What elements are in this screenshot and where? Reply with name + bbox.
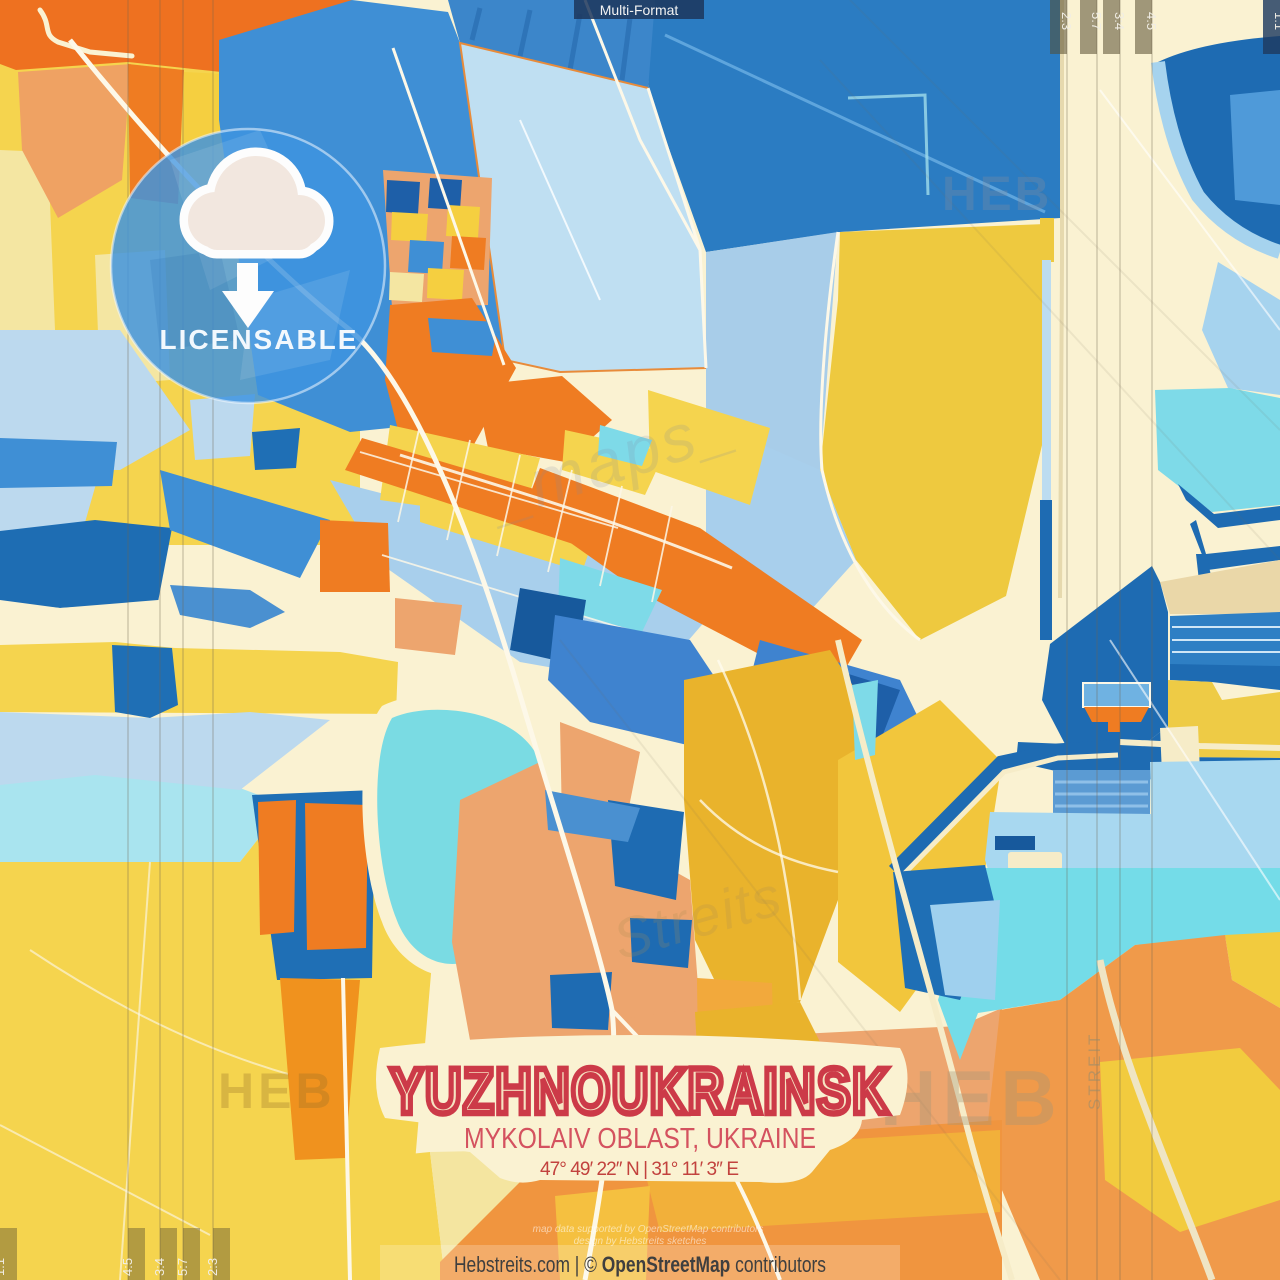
svg-text:map data supported by OpenStre: map data supported by OpenStreetMap cont…: [533, 1224, 764, 1235]
svg-text:3:4: 3:4: [1112, 12, 1127, 30]
svg-text:3:4: 3:4: [152, 1258, 167, 1276]
svg-text:design by Hebstreits sketches: design by Hebstreits sketches: [574, 1236, 707, 1247]
svg-text:MYKOLAIV OBLAST, UKRAINE: MYKOLAIV OBLAST, UKRAINE: [464, 1123, 816, 1155]
svg-text:STREIT: STREIT: [1085, 1032, 1104, 1110]
svg-text:YUZHNOUKRAINSK: YUZHNOUKRAINSK: [390, 1055, 890, 1127]
svg-text:HEB: HEB: [880, 1054, 1063, 1142]
svg-text:1:1: 1:1: [0, 1258, 7, 1276]
svg-text:Multi-Format: Multi-Format: [600, 2, 679, 18]
svg-text:2:3: 2:3: [205, 1258, 220, 1276]
svg-text:Hebstreits.com | © OpenStreetM: Hebstreits.com | © OpenStreetMap contrib…: [454, 1252, 826, 1277]
svg-text:HEB: HEB: [218, 1063, 336, 1119]
svg-text:5:7: 5:7: [175, 1258, 190, 1276]
svg-text:5:7: 5:7: [1089, 12, 1104, 30]
svg-text:4:5: 4:5: [120, 1258, 135, 1276]
svg-text:HEB: HEB: [942, 168, 1052, 221]
svg-text:1:1: 1:1: [1272, 12, 1280, 30]
svg-text:2:3: 2:3: [1059, 12, 1074, 30]
svg-text:47° 49′ 22″ N | 31° 11′: 47° 49′ 22″ N | 31° 11′ 3″ E: [540, 1159, 740, 1180]
svg-text:4:5: 4:5: [1144, 12, 1159, 30]
svg-text:LICENSABLE: LICENSABLE: [160, 324, 359, 355]
